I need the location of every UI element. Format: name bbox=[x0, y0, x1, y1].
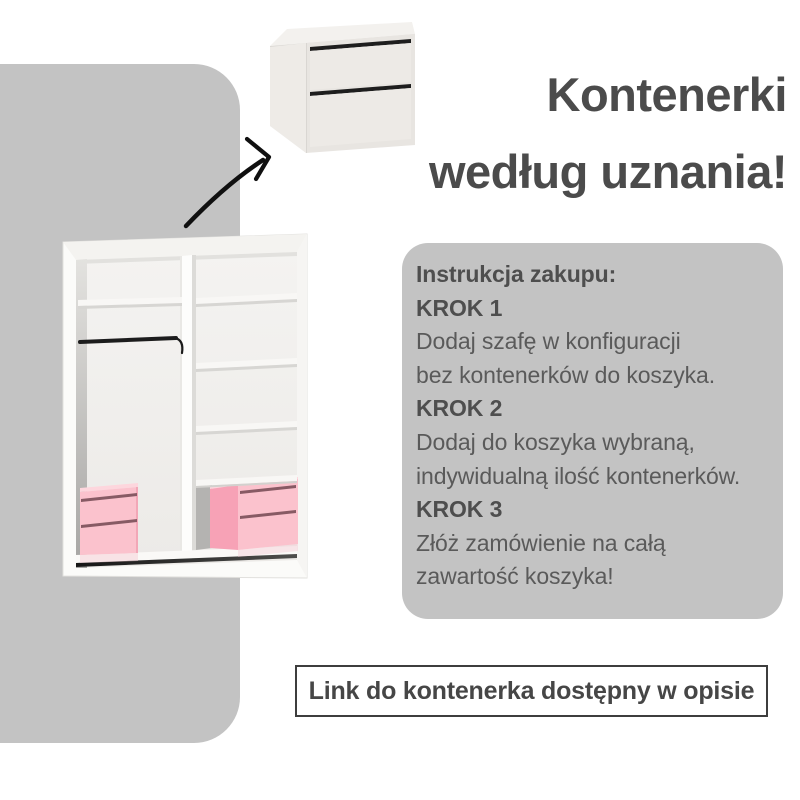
step-text: Złóż zamówienie na całą bbox=[416, 527, 773, 561]
arrow-icon bbox=[168, 122, 280, 234]
pink-container-side bbox=[210, 485, 238, 550]
container-unit bbox=[270, 22, 415, 153]
title-line-2: według uznania! bbox=[429, 133, 787, 210]
footer-note-text: Link do kontenerka dostępny w opisie bbox=[309, 677, 755, 706]
step-label: KROK 3 bbox=[416, 493, 773, 527]
container-drawer-front bbox=[310, 88, 411, 147]
step-label: KROK 1 bbox=[416, 292, 773, 326]
center-divider bbox=[182, 255, 192, 561]
product-infographic: Kontenerki według uznania! Instrukcja za… bbox=[0, 0, 800, 800]
arrow-shaft bbox=[186, 160, 263, 226]
container-unit-illustration bbox=[262, 18, 422, 158]
instructions-box: Instrukcja zakupu: KROK 1 Dodaj szafę w … bbox=[402, 243, 783, 619]
arrow-head bbox=[247, 139, 269, 179]
step-label: KROK 2 bbox=[416, 392, 773, 426]
wardrobe-right-frame bbox=[297, 234, 307, 578]
step-text: Dodaj do koszyka wybraną, bbox=[416, 426, 773, 460]
container-drawer-front bbox=[310, 43, 411, 90]
step-text: Dodaj szafę w konfiguracji bbox=[416, 325, 773, 359]
divider-shadow bbox=[192, 255, 196, 560]
footer-note-box: Link do kontenerka dostępny w opisie bbox=[295, 665, 768, 717]
wardrobe-illustration bbox=[50, 230, 312, 590]
pink-container-right bbox=[210, 477, 298, 557]
instructions-heading: Instrukcja zakupu: bbox=[416, 258, 773, 292]
container-back-shadow bbox=[196, 485, 212, 550]
pink-container-left bbox=[80, 483, 138, 563]
container-corner-line bbox=[306, 43, 307, 153]
step-text: indywidualną ilość kontenerków. bbox=[416, 460, 773, 494]
page-title: Kontenerki według uznania! bbox=[429, 56, 787, 210]
title-line-1: Kontenerki bbox=[429, 56, 787, 133]
step-text: zawartość koszyka! bbox=[416, 560, 773, 594]
step-text: bez kontenerków do koszyka. bbox=[416, 359, 773, 393]
